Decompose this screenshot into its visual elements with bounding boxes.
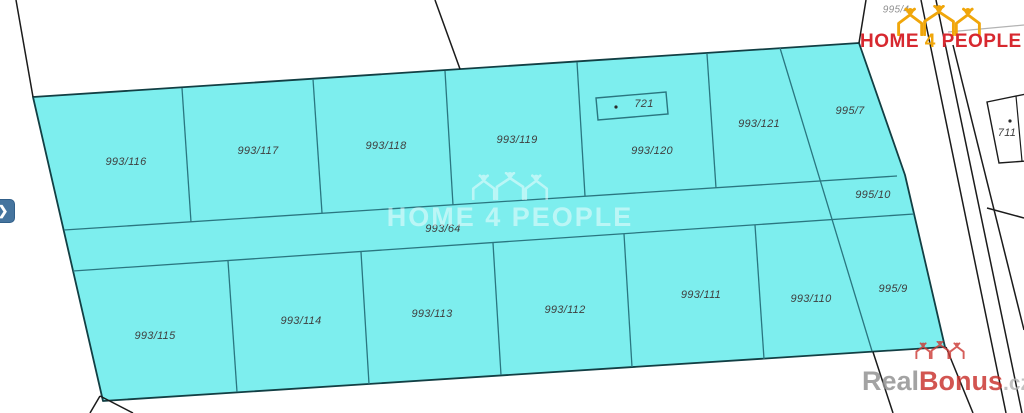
home4people-houses-icon	[860, 5, 1018, 31]
parcel-label-721: 721	[634, 98, 653, 110]
parcel-label-993-115: 993/115	[134, 330, 176, 342]
parcel-label-993-114: 993/114	[280, 315, 321, 327]
parcel-label-711: 711	[998, 127, 1016, 139]
cadastre-boundary-line	[987, 208, 1024, 218]
home4people-logo: HOME 4 PEOPLE	[860, 5, 1018, 51]
parcel-label-993-120: 993/120	[631, 145, 673, 157]
parcel-label-995-10: 995/10	[855, 189, 891, 201]
logo-word-home: HOME	[860, 31, 919, 52]
home4people-logo-text: HOME 4 PEOPLE	[860, 32, 1018, 51]
parcel-label-993-121: 993/121	[738, 118, 780, 130]
parcel-711-point	[1008, 119, 1011, 122]
parcel-label-993-116: 993/116	[105, 156, 147, 168]
parcel-label-995-7: 995/7	[835, 105, 865, 117]
cadastre-boundary-line	[946, 347, 973, 413]
cadastre-boundary-line	[16, 0, 33, 97]
logo-word-people: PEOPLE	[942, 31, 1022, 52]
parcel-label-993-64: 993/64	[425, 223, 460, 235]
parcel-label-993-111: 993/111	[681, 289, 721, 301]
map-canvas: 993/116993/117993/118993/119993/120993/1…	[0, 0, 1024, 413]
cadastral-map-image: 993/116993/117993/118993/119993/120993/1…	[0, 0, 1024, 413]
cadastre-boundary-line	[435, 0, 460, 69]
cadastre-boundary-line	[90, 396, 100, 413]
parcel-label-993-117: 993/117	[237, 145, 279, 157]
cadastre-boundary-line	[936, 0, 1022, 413]
parcel-label-993-118: 993/118	[365, 140, 407, 152]
parcel-label-993-113: 993/113	[411, 308, 453, 320]
parcel-label-993-119: 993/119	[496, 134, 537, 146]
next-arrow-button[interactable]: ❯	[0, 199, 15, 223]
parcel-label-993-110: 993/110	[790, 293, 832, 305]
cadastre-boundary-line	[953, 45, 1024, 330]
cadastre-boundary-line	[873, 352, 893, 413]
parcel-label-993-112: 993/112	[544, 304, 585, 316]
highlighted-parcels-region	[33, 43, 945, 401]
logo-word-4: 4	[925, 31, 936, 52]
chevron-right-icon: ❯	[0, 203, 8, 219]
building-721-point	[614, 105, 617, 108]
parcel-label-995-9: 995/9	[878, 283, 907, 295]
